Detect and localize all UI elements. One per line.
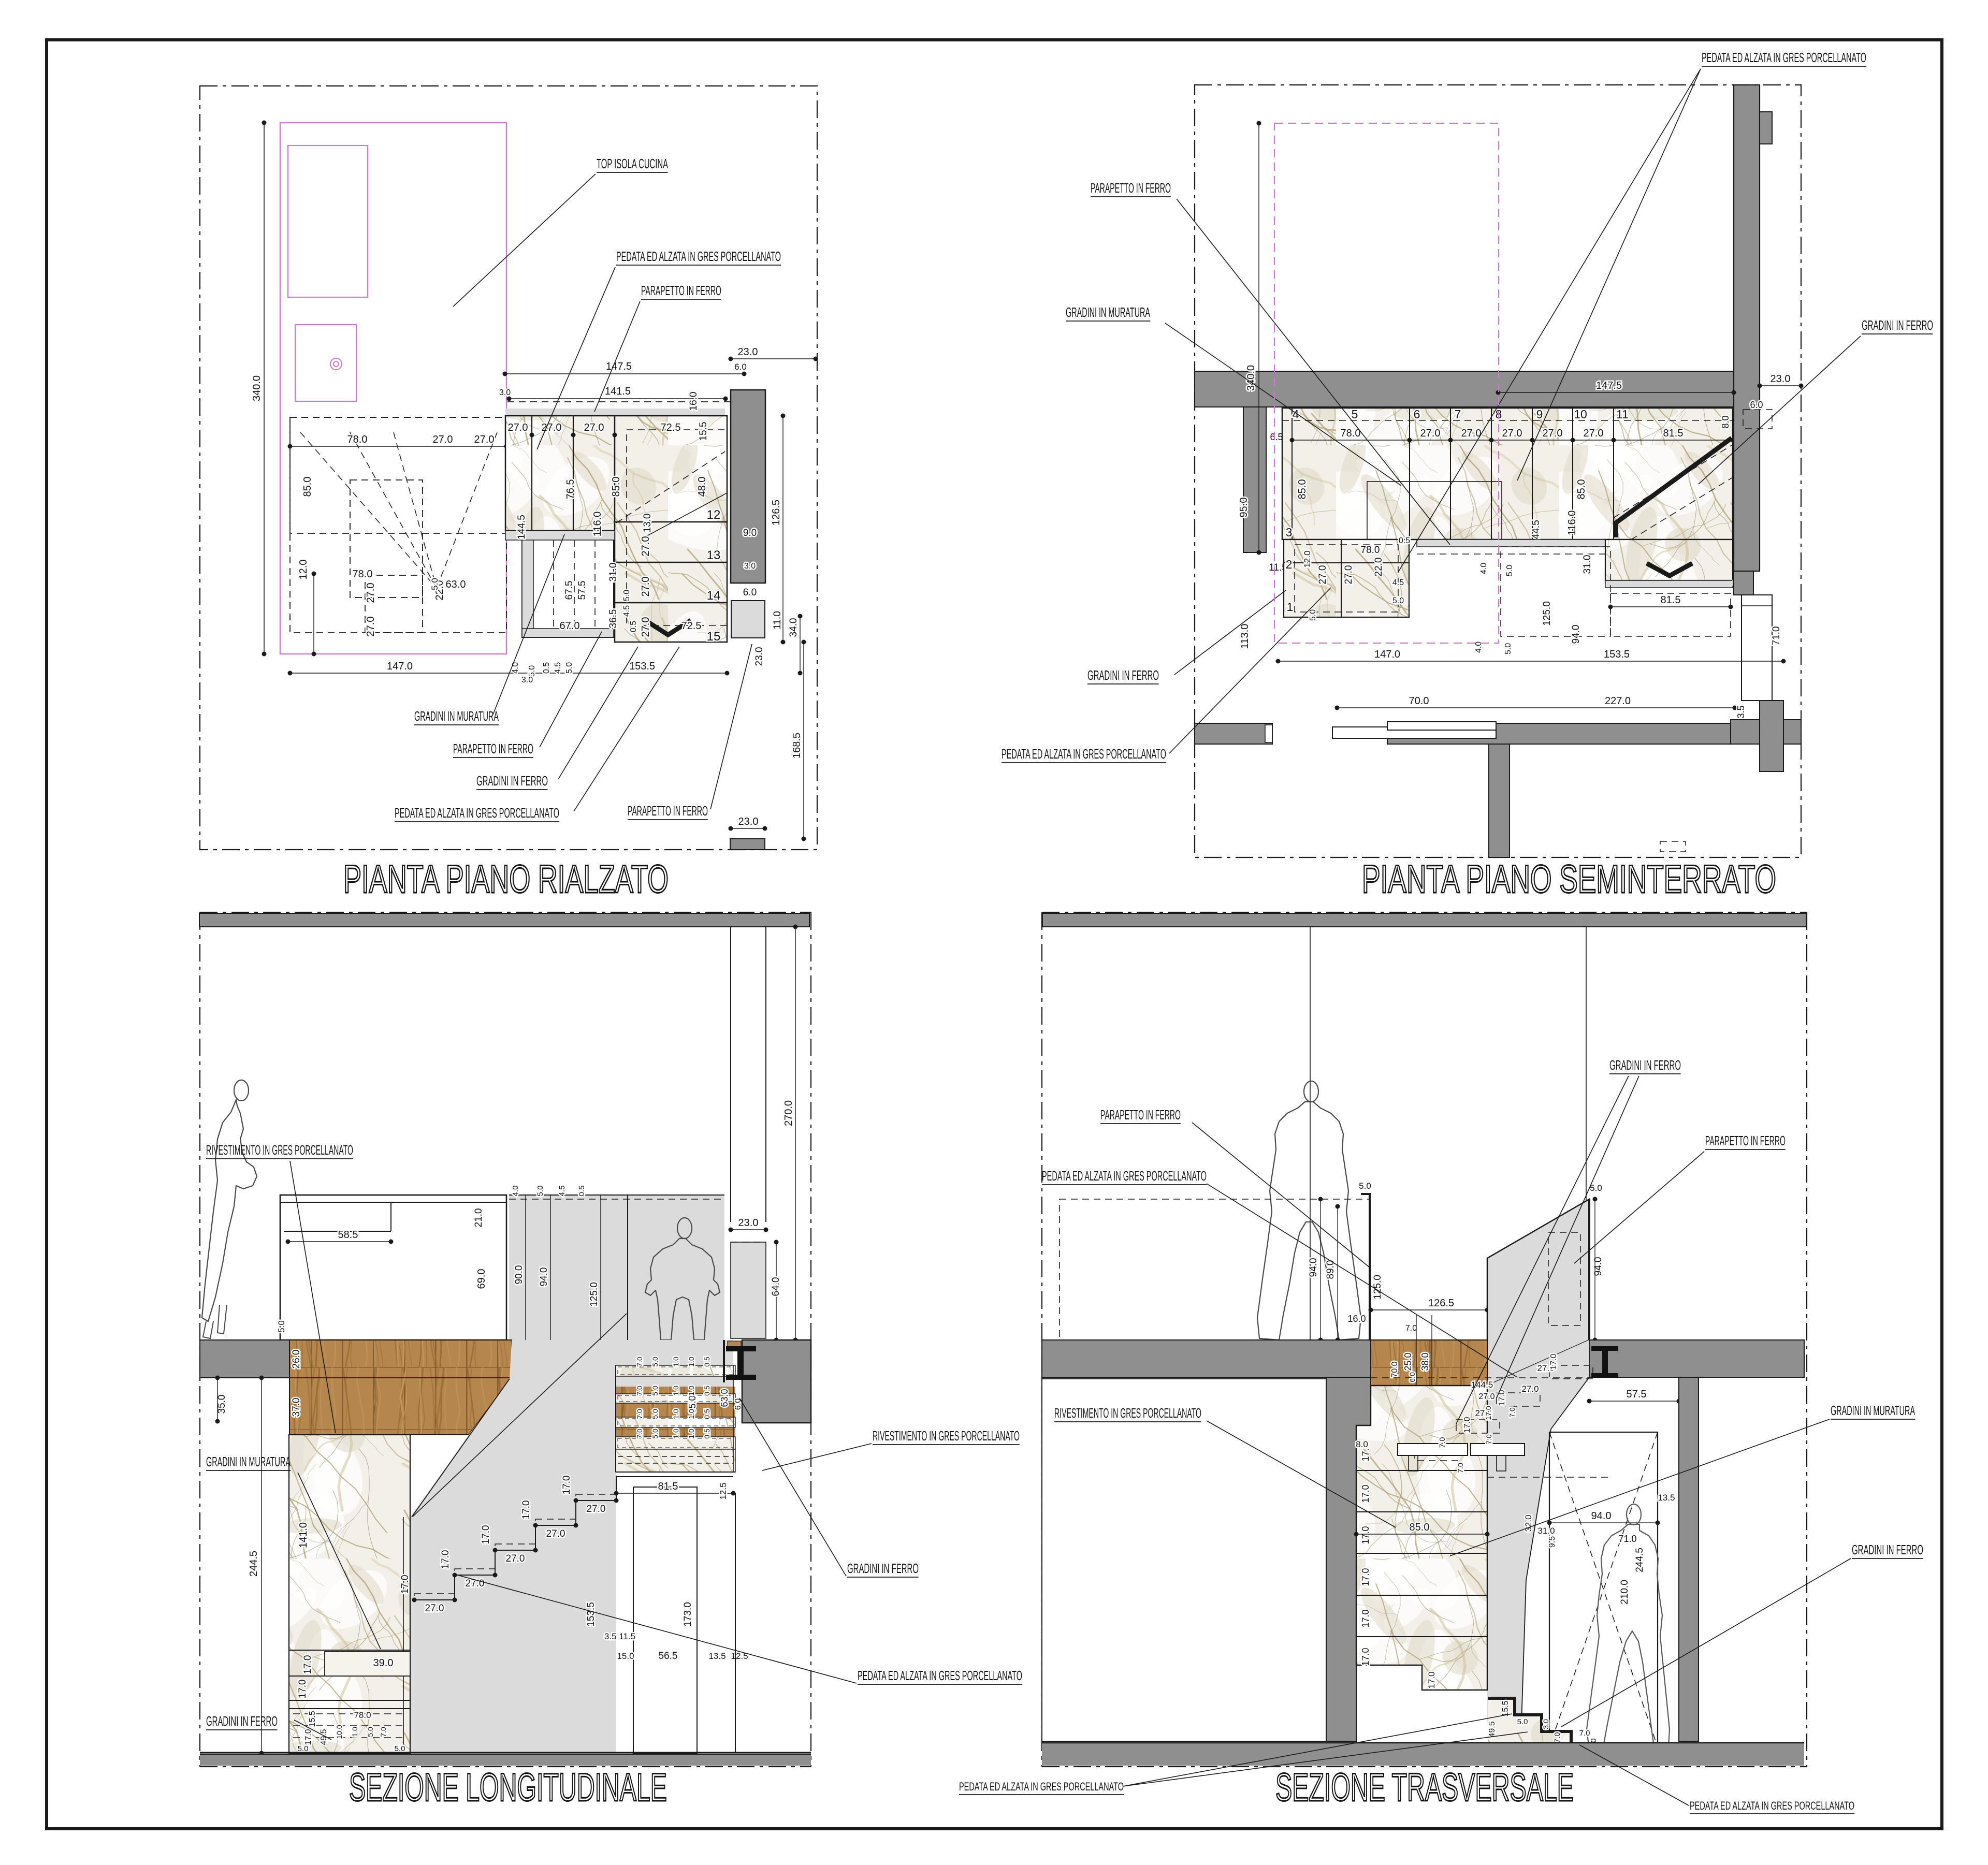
svg-text:12.0: 12.0: [1302, 550, 1312, 567]
svg-text:17.0: 17.0: [1360, 1526, 1371, 1544]
svg-text:0.5: 0.5: [703, 1386, 711, 1396]
svg-text:3.0: 3.0: [1542, 1719, 1550, 1729]
svg-text:1.0: 1.0: [687, 1409, 695, 1419]
svg-text:85.0: 85.0: [611, 477, 622, 497]
svg-text:31.0: 31.0: [608, 563, 619, 582]
svg-text:17.0: 17.0: [1360, 1484, 1371, 1503]
svg-text:126.5: 126.5: [1428, 1298, 1454, 1309]
svg-text:17.0: 17.0: [1484, 1406, 1492, 1420]
svg-text:85.0: 85.0: [1297, 479, 1308, 500]
svg-text:PARAPETTO IN FERRO: PARAPETTO IN FERRO: [628, 803, 708, 819]
svg-text:GRADINI IN MURATURA: GRADINI IN MURATURA: [414, 708, 499, 724]
svg-text:PARAPETTO IN FERRO: PARAPETTO IN FERRO: [1091, 180, 1171, 196]
svg-text:1.0: 1.0: [672, 1409, 680, 1419]
svg-text:244.5: 244.5: [248, 1551, 259, 1577]
svg-text:7.0: 7.0: [1508, 1407, 1516, 1418]
svg-text:57.5: 57.5: [577, 581, 588, 600]
svg-text:340.0: 340.0: [1245, 365, 1257, 391]
svg-text:7: 7: [1455, 407, 1461, 421]
svg-text:38.0: 38.0: [1420, 1352, 1430, 1371]
svg-text:94.0: 94.0: [1593, 1257, 1604, 1276]
svg-text:6.0: 6.0: [743, 587, 757, 598]
svg-text:1.0: 1.0: [687, 1357, 695, 1367]
svg-text:6.0: 6.0: [1408, 1372, 1416, 1382]
svg-text:12.5: 12.5: [731, 1651, 748, 1661]
svg-text:17.0: 17.0: [1549, 1353, 1558, 1369]
svg-text:17.0: 17.0: [440, 1550, 451, 1569]
svg-text:16.0: 16.0: [1347, 1314, 1366, 1324]
svg-text:5.0: 5.0: [1504, 643, 1513, 654]
svg-text:15.5: 15.5: [308, 1711, 317, 1727]
svg-text:116.0: 116.0: [1566, 511, 1578, 536]
svg-text:1.0: 1.0: [687, 1429, 695, 1439]
svg-text:23.0: 23.0: [1771, 373, 1791, 385]
svg-text:13.5: 13.5: [1658, 1493, 1675, 1503]
svg-text:5.0: 5.0: [528, 665, 536, 677]
svg-text:17.0: 17.0: [1427, 1671, 1436, 1688]
svg-text:PARAPETTO IN FERRO: PARAPETTO IN FERRO: [1100, 1107, 1181, 1123]
svg-text:15: 15: [707, 630, 721, 644]
svg-text:49.5: 49.5: [1488, 1721, 1497, 1737]
svg-text:TOP ISOLA CUCINA: TOP ISOLA CUCINA: [597, 156, 668, 171]
svg-text:27.0: 27.0: [508, 422, 528, 433]
svg-text:144.5: 144.5: [1471, 1380, 1493, 1390]
svg-text:90.0: 90.0: [514, 1265, 525, 1285]
svg-text:5.0: 5.0: [651, 1386, 659, 1396]
svg-text:GRADINI IN FERRO: GRADINI IN FERRO: [1609, 1057, 1681, 1073]
svg-text:5.0: 5.0: [1505, 565, 1514, 576]
svg-text:17.0: 17.0: [297, 1680, 308, 1699]
svg-text:78.0: 78.0: [1361, 545, 1380, 556]
svg-text:27.0: 27.0: [1317, 565, 1328, 585]
svg-text:1: 1: [1287, 600, 1294, 614]
svg-text:63.0: 63.0: [446, 579, 466, 590]
svg-text:27.0: 27.0: [506, 1553, 525, 1564]
svg-text:147.0: 147.0: [387, 661, 413, 672]
svg-text:PEDATA ED ALZATA IN GRES PORCE: PEDATA ED ALZATA IN GRES PORCELLANATO: [1690, 1799, 1854, 1812]
svg-text:7.0: 7.0: [635, 1357, 644, 1367]
svg-text:5.0: 5.0: [651, 1429, 659, 1439]
svg-text:5.0: 5.0: [565, 662, 574, 674]
svg-text:5.0: 5.0: [622, 590, 631, 601]
svg-text:27.0: 27.0: [1343, 565, 1354, 585]
svg-text:116.0: 116.0: [592, 512, 603, 537]
svg-text:PARAPETTO IN FERRO: PARAPETTO IN FERRO: [1705, 1133, 1786, 1148]
svg-text:0.5: 0.5: [1399, 536, 1410, 545]
svg-text:6.0: 6.0: [1750, 400, 1763, 410]
svg-text:64.0: 64.0: [771, 1277, 781, 1296]
svg-text:13: 13: [707, 548, 721, 562]
svg-text:6.0: 6.0: [734, 1398, 743, 1410]
svg-text:5.0: 5.0: [298, 1744, 309, 1753]
svg-text:125.0: 125.0: [1542, 601, 1552, 626]
svg-text:SEZIONE LONGITUDINALE: SEZIONE LONGITUDINALE: [349, 1766, 667, 1810]
svg-text:5: 5: [1352, 407, 1358, 421]
svg-text:RIVESTIMENTO IN GRES PORCELLAN: RIVESTIMENTO IN GRES PORCELLANATO: [1054, 1405, 1201, 1421]
svg-text:7.0: 7.0: [1579, 1729, 1590, 1738]
svg-text:1.0: 1.0: [672, 1429, 680, 1439]
svg-text:78.0: 78.0: [347, 434, 368, 445]
svg-text:3.5 11.5: 3.5 11.5: [604, 1631, 635, 1641]
svg-text:78.0: 78.0: [353, 569, 373, 580]
svg-text:17.0: 17.0: [304, 1729, 313, 1745]
svg-text:81.5: 81.5: [658, 1481, 678, 1492]
svg-text:5.0: 5.0: [536, 1186, 545, 1197]
svg-text:9: 9: [1536, 407, 1543, 421]
svg-text:1.0: 1.0: [687, 1386, 695, 1396]
svg-text:4.5: 4.5: [1392, 578, 1404, 587]
svg-text:6: 6: [1414, 407, 1420, 421]
svg-text:27.0: 27.0: [1543, 428, 1563, 439]
svg-text:153.5: 153.5: [1604, 649, 1630, 660]
svg-text:3.0: 3.0: [521, 676, 533, 684]
svg-text:2: 2: [1286, 558, 1293, 571]
svg-text:27.0: 27.0: [640, 577, 651, 597]
svg-text:12: 12: [707, 508, 721, 522]
svg-text:4.5: 4.5: [554, 662, 562, 674]
svg-text:PEDATA ED ALZATA IN GRES PORCE: PEDATA ED ALZATA IN GRES PORCELLANATO: [1042, 1168, 1207, 1184]
svg-text:153.5: 153.5: [629, 661, 655, 672]
svg-text:11: 11: [1616, 407, 1629, 421]
svg-text:27.0: 27.0: [365, 583, 376, 603]
svg-text:7.0: 7.0: [1485, 1434, 1493, 1445]
svg-text:GRADINI IN FERRO: GRADINI IN FERRO: [1862, 317, 1933, 333]
svg-text:0.5: 0.5: [703, 1409, 711, 1419]
svg-text:57.5: 57.5: [1627, 1389, 1647, 1400]
svg-text:37.0: 37.0: [291, 1398, 302, 1417]
svg-text:125.0: 125.0: [1372, 1275, 1383, 1300]
svg-text:113.0: 113.0: [1239, 624, 1251, 649]
svg-text:67.0: 67.0: [560, 620, 580, 632]
svg-text:PARAPETTO IN FERRO: PARAPETTO IN FERRO: [641, 283, 721, 298]
svg-text:0.5: 0.5: [629, 621, 638, 632]
svg-text:15.5: 15.5: [698, 422, 709, 441]
svg-text:147.5: 147.5: [606, 361, 632, 372]
svg-text:126.5: 126.5: [771, 500, 782, 526]
svg-text:5.0: 5.0: [395, 1744, 405, 1753]
svg-text:210.0: 210.0: [1619, 1580, 1630, 1605]
svg-text:PIANTA PIANO RIALZATO: PIANTA PIANO RIALZATO: [343, 857, 669, 901]
svg-text:5.0: 5.0: [430, 578, 440, 590]
svg-text:227.0: 227.0: [1605, 695, 1631, 707]
svg-text:141.5: 141.5: [605, 386, 631, 397]
svg-text:31.0: 31.0: [1537, 1526, 1555, 1536]
svg-text:27.0: 27.0: [433, 434, 453, 445]
svg-text:PEDATA ED ALZATA IN GRES PORCE: PEDATA ED ALZATA IN GRES PORCELLANATO: [1002, 746, 1166, 762]
svg-text:17.0: 17.0: [1360, 1609, 1371, 1627]
svg-text:125.0: 125.0: [589, 1282, 600, 1307]
svg-text:4.0: 4.0: [511, 1186, 520, 1197]
svg-text:14: 14: [707, 589, 721, 603]
svg-text:94.0: 94.0: [1308, 1258, 1319, 1277]
svg-text:27.0: 27.0: [365, 617, 376, 637]
svg-text:4.5: 4.5: [622, 605, 631, 617]
svg-text:7.0: 7.0: [1405, 1324, 1417, 1333]
svg-text:58.5: 58.5: [338, 1229, 358, 1241]
svg-text:78.0: 78.0: [354, 1710, 371, 1720]
svg-text:17.0: 17.0: [400, 1575, 411, 1594]
svg-text:5.0: 5.0: [1517, 1717, 1528, 1726]
svg-text:0.5: 0.5: [703, 1357, 711, 1367]
svg-text:11.0: 11.0: [772, 611, 783, 630]
svg-text:27.0: 27.0: [587, 1504, 606, 1514]
svg-text:76.5: 76.5: [565, 479, 576, 500]
svg-text:5.0: 5.0: [1359, 1181, 1371, 1191]
svg-text:17.0: 17.0: [481, 1525, 491, 1545]
svg-text:173.0: 173.0: [683, 1602, 693, 1627]
svg-text:6.0: 6.0: [734, 362, 747, 372]
svg-text:94.0: 94.0: [1571, 625, 1581, 644]
svg-text:7.0: 7.0: [1438, 1437, 1447, 1448]
svg-text:GRADINI IN FERRO: GRADINI IN FERRO: [1852, 1542, 1923, 1557]
svg-text:72.5: 72.5: [681, 620, 702, 632]
svg-text:340.0: 340.0: [251, 375, 263, 401]
svg-text:27.0: 27.0: [640, 617, 651, 637]
svg-text:34.0: 34.0: [788, 618, 799, 637]
svg-text:GRADINI IN FERRO: GRADINI IN FERRO: [847, 1561, 919, 1576]
svg-text:5.0: 5.0: [366, 1727, 374, 1737]
svg-text:17.0: 17.0: [1463, 1417, 1472, 1433]
svg-text:94.0: 94.0: [539, 1267, 549, 1287]
svg-text:17.0: 17.0: [561, 1476, 572, 1495]
svg-text:PEDATA ED ALZATA IN GRES PORCE: PEDATA ED ALZATA IN GRES PORCELLANATO: [959, 1780, 1124, 1793]
svg-text:13.0: 13.0: [642, 514, 653, 533]
svg-text:17.0: 17.0: [302, 1655, 313, 1674]
svg-text:5.0: 5.0: [651, 1409, 659, 1419]
svg-text:67.5: 67.5: [564, 581, 575, 600]
svg-text:8.0: 8.0: [1356, 1439, 1368, 1449]
svg-text:71.0: 71.0: [1618, 1534, 1636, 1544]
svg-text:10.0: 10.0: [335, 1725, 343, 1739]
svg-text:85.0: 85.0: [302, 477, 313, 497]
svg-text:4.0: 4.0: [1479, 563, 1488, 574]
svg-text:5.0: 5.0: [651, 1357, 659, 1367]
svg-text:3.0: 3.0: [744, 562, 756, 571]
svg-text:9.0: 9.0: [743, 528, 757, 538]
svg-text:5.0: 5.0: [1590, 1183, 1602, 1193]
svg-text:153.5: 153.5: [586, 1602, 597, 1627]
svg-text:23.0: 23.0: [738, 346, 758, 358]
svg-text:1.0: 1.0: [672, 1357, 680, 1367]
svg-text:GRADINI IN MURATURA: GRADINI IN MURATURA: [1831, 1403, 1915, 1418]
svg-text:27.0: 27.0: [425, 1603, 444, 1614]
svg-text:168.5: 168.5: [791, 733, 803, 759]
svg-text:23.0: 23.0: [754, 647, 765, 666]
svg-text:27.0: 27.0: [1478, 1392, 1494, 1401]
svg-text:GRADINI IN FERRO: GRADINI IN FERRO: [1087, 667, 1159, 683]
svg-text:85.0: 85.0: [1410, 1522, 1430, 1533]
svg-text:27.0: 27.0: [1502, 428, 1522, 439]
svg-text:17.0: 17.0: [1360, 1568, 1371, 1586]
svg-text:39.0: 39.0: [373, 1657, 394, 1669]
svg-text:PEDATA ED ALZATA IN GRES PORCE: PEDATA ED ALZATA IN GRES PORCELLANATO: [395, 805, 559, 821]
svg-text:27.0: 27.0: [1420, 428, 1441, 439]
svg-text:PIANTA PIANO SEMINTERRATO: PIANTA PIANO SEMINTERRATO: [1362, 857, 1776, 901]
svg-text:12.0: 12.0: [298, 560, 309, 580]
svg-text:PEDATA ED ALZATA IN GRES PORCE: PEDATA ED ALZATA IN GRES PORCELLANATO: [1702, 50, 1866, 65]
svg-text:144.5: 144.5: [516, 515, 527, 540]
svg-text:81.5: 81.5: [1663, 428, 1684, 439]
svg-text:PEDATA ED ALZATA IN GRES PORCE: PEDATA ED ALZATA IN GRES PORCELLANATO: [616, 249, 781, 264]
svg-text:5.0: 5.0: [1392, 596, 1404, 605]
svg-text:GRADINI IN FERRO: GRADINI IN FERRO: [206, 1713, 278, 1729]
svg-text:16.0: 16.0: [688, 392, 699, 411]
svg-text:27.0: 27.0: [546, 1528, 565, 1539]
svg-text:RIVESTIMENTO IN GRES PORCELLAN: RIVESTIMENTO IN GRES PORCELLANATO: [873, 1428, 1020, 1444]
svg-text:0.5: 0.5: [703, 1429, 711, 1439]
svg-text:PARAPETTO IN FERRO: PARAPETTO IN FERRO: [453, 741, 533, 756]
svg-text:27.0: 27.0: [474, 434, 495, 445]
svg-text:1.0: 1.0: [351, 1727, 359, 1737]
svg-text:12.5: 12.5: [718, 1482, 728, 1499]
svg-text:7.0: 7.0: [635, 1386, 644, 1396]
svg-text:25.0: 25.0: [1403, 1352, 1413, 1371]
svg-text:22.0: 22.0: [1373, 558, 1384, 577]
svg-text:21.0: 21.0: [473, 1208, 484, 1228]
svg-text:70.0: 70.0: [1409, 695, 1429, 707]
svg-text:23.0: 23.0: [738, 1217, 759, 1229]
svg-text:7.0: 7.0: [635, 1429, 644, 1439]
svg-text:70.0: 70.0: [1390, 1361, 1399, 1377]
svg-text:147.0: 147.0: [1374, 649, 1400, 660]
svg-text:6.5: 6.5: [1270, 432, 1283, 442]
svg-text:3.0: 3.0: [499, 388, 511, 397]
svg-text:27.0: 27.0: [584, 422, 604, 433]
svg-text:141.0: 141.0: [298, 1522, 309, 1548]
svg-text:69.0: 69.0: [476, 1269, 487, 1289]
svg-text:56.5: 56.5: [659, 1651, 678, 1662]
svg-text:13.5: 13.5: [708, 1651, 725, 1661]
svg-text:48.0: 48.0: [696, 477, 708, 497]
svg-text:63.0: 63.0: [719, 1389, 730, 1407]
svg-text:95.0: 95.0: [1238, 498, 1250, 518]
svg-text:15.0: 15.0: [617, 1651, 634, 1661]
svg-text:27.0: 27.0: [1461, 428, 1482, 439]
svg-text:10: 10: [1574, 407, 1587, 421]
svg-text:GRADINI IN FERRO: GRADINI IN FERRO: [476, 773, 548, 789]
svg-text:0.5: 0.5: [577, 1186, 586, 1197]
svg-text:17.0: 17.0: [521, 1500, 532, 1520]
svg-text:71.0: 71.0: [1771, 626, 1782, 646]
svg-text:1.0: 1.0: [672, 1386, 680, 1396]
svg-text:31.0: 31.0: [1582, 555, 1593, 574]
svg-text:27.0: 27.0: [640, 536, 651, 557]
svg-text:94.0: 94.0: [1591, 1510, 1612, 1522]
svg-text:GRADINI IN MURATURA: GRADINI IN MURATURA: [206, 1454, 291, 1469]
svg-text:85.0: 85.0: [1576, 479, 1587, 500]
svg-text:9.5: 9.5: [1548, 1536, 1557, 1548]
svg-text:8.0: 8.0: [1720, 415, 1731, 428]
svg-text:7.0: 7.0: [635, 1409, 644, 1419]
svg-text:PEDATA ED ALZATA IN GRES PORCE: PEDATA ED ALZATA IN GRES PORCELLANATO: [858, 1668, 1022, 1683]
svg-text:36.5: 36.5: [608, 609, 619, 629]
svg-text:RIVESTIMENTO IN GRES PORCELLAN: RIVESTIMENTO IN GRES PORCELLANATO: [206, 1142, 353, 1158]
svg-text:27.0: 27.0: [1584, 428, 1604, 439]
svg-text:78.0: 78.0: [1341, 428, 1361, 439]
svg-text:GRADINI IN MURATURA: GRADINI IN MURATURA: [1066, 304, 1150, 320]
svg-text:270.0: 270.0: [783, 1100, 794, 1126]
svg-text:5.0: 5.0: [1309, 609, 1317, 621]
svg-text:5.0: 5.0: [277, 1320, 286, 1333]
svg-text:27.0: 27.0: [1521, 1384, 1539, 1394]
svg-text:17.0: 17.0: [1360, 1648, 1371, 1666]
svg-text:72.5: 72.5: [661, 422, 681, 433]
svg-text:147.5: 147.5: [1596, 380, 1622, 391]
svg-text:3: 3: [1286, 526, 1293, 539]
svg-text:7.0: 7.0: [379, 1727, 387, 1737]
svg-text:244.5: 244.5: [1634, 1548, 1645, 1572]
svg-text:SEZIONE TRASVERSALE: SEZIONE TRASVERSALE: [1275, 1766, 1574, 1810]
svg-text:7.0: 7.0: [1456, 1463, 1464, 1473]
svg-text:4.0: 4.0: [511, 662, 520, 674]
svg-text:23.0: 23.0: [738, 816, 759, 827]
svg-text:81.5: 81.5: [1661, 594, 1681, 606]
svg-text:35.0: 35.0: [216, 1395, 227, 1414]
svg-text:0.5: 0.5: [542, 662, 551, 674]
svg-text:4.5: 4.5: [558, 1186, 567, 1197]
svg-text:26.0: 26.0: [291, 1350, 302, 1369]
